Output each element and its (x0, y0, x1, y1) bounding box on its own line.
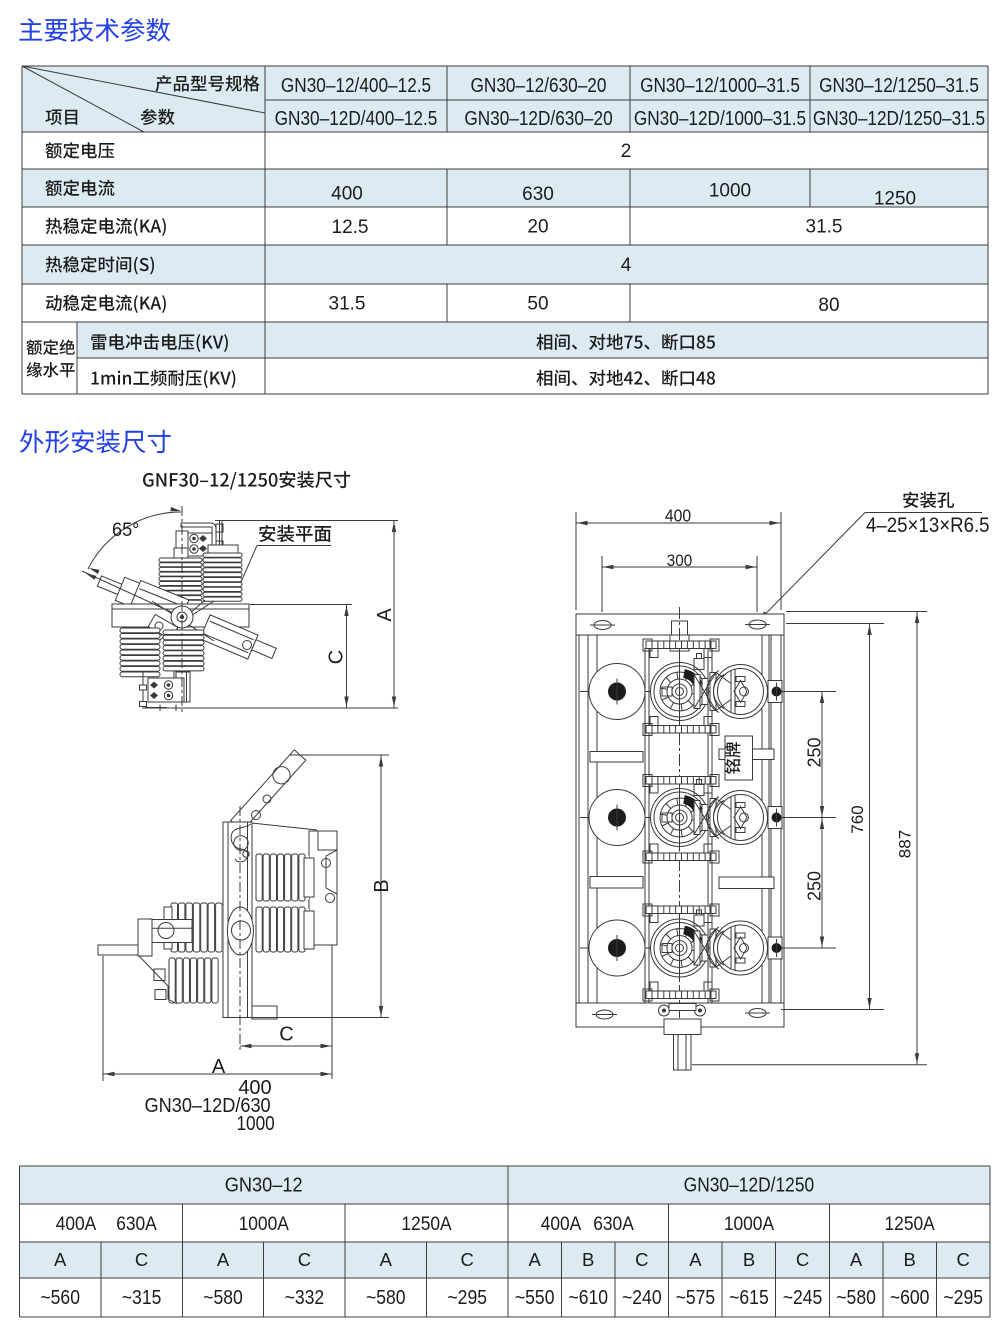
svg-text:C: C (279, 1024, 293, 1046)
svg-text:A: A (212, 1056, 226, 1078)
svg-text:GN30–12/1250–31.5: GN30–12/1250–31.5 (819, 75, 979, 98)
svg-text:~295: ~295 (447, 1286, 487, 1308)
svg-text:250: 250 (805, 737, 825, 767)
svg-text:A: A (850, 1249, 863, 1270)
svg-text:1250A: 1250A (885, 1212, 936, 1234)
svg-text:887: 887 (896, 830, 915, 858)
svg-text:C: C (298, 1249, 311, 1270)
svg-text:31.5: 31.5 (806, 217, 843, 238)
svg-text:50: 50 (527, 294, 548, 315)
svg-text:~580: ~580 (366, 1286, 406, 1308)
svg-text:250: 250 (805, 871, 825, 901)
svg-text:GN30–12D/400–12.5: GN30–12D/400–12.5 (275, 108, 438, 131)
svg-text:C: C (957, 1249, 970, 1270)
svg-text:A: A (380, 1249, 393, 1270)
svg-text:~580: ~580 (836, 1286, 876, 1308)
svg-text:630A: 630A (593, 1212, 634, 1234)
svg-text:GN30–12/630–20: GN30–12/630–20 (471, 75, 607, 98)
svg-text:C: C (461, 1249, 474, 1270)
svg-text:GN30–12D/1250–31.5: GN30–12D/1250–31.5 (813, 108, 985, 131)
svg-text:~560: ~560 (40, 1286, 80, 1308)
svg-text:4–25×13×R6.5: 4–25×13×R6.5 (866, 514, 990, 537)
svg-text:630: 630 (522, 184, 554, 205)
svg-text:80: 80 (818, 295, 839, 316)
svg-text:1000A: 1000A (724, 1212, 775, 1234)
svg-text:4: 4 (621, 255, 632, 276)
svg-text:12.5: 12.5 (332, 217, 369, 238)
svg-text:C: C (635, 1249, 648, 1270)
svg-text:400: 400 (665, 506, 691, 526)
svg-text:630A: 630A (116, 1212, 157, 1234)
svg-text:GN30–12D/1000–31.5: GN30–12D/1000–31.5 (634, 108, 806, 131)
svg-text:~575: ~575 (676, 1286, 716, 1308)
svg-text:B: B (743, 1249, 755, 1270)
svg-text:65°: 65° (112, 518, 139, 540)
svg-text:1000: 1000 (237, 1112, 275, 1135)
svg-text:B: B (582, 1249, 594, 1270)
svg-text:C: C (135, 1249, 148, 1270)
svg-text:GN30–12D/1250: GN30–12D/1250 (684, 1173, 815, 1195)
svg-text:~600: ~600 (890, 1286, 930, 1308)
svg-text:A: A (529, 1249, 542, 1270)
svg-text:31.5: 31.5 (329, 294, 366, 315)
svg-text:A: A (689, 1249, 702, 1270)
svg-text:1250A: 1250A (401, 1212, 452, 1234)
svg-text:~295: ~295 (943, 1286, 983, 1308)
svg-text:GN30–12/400–12.5: GN30–12/400–12.5 (281, 75, 431, 98)
svg-text:A: A (54, 1249, 67, 1270)
svg-text:400A: 400A (56, 1212, 97, 1234)
svg-text:400A: 400A (541, 1212, 582, 1234)
svg-text:~610: ~610 (568, 1286, 608, 1308)
svg-text:1000A: 1000A (239, 1212, 290, 1234)
svg-text:A: A (374, 608, 396, 622)
svg-text:A: A (217, 1249, 230, 1270)
svg-text:~245: ~245 (783, 1286, 823, 1308)
svg-text:B: B (904, 1249, 916, 1270)
svg-text:C: C (326, 650, 348, 664)
svg-text:C: C (796, 1249, 809, 1270)
svg-text:~332: ~332 (285, 1286, 325, 1308)
svg-text:2: 2 (621, 141, 632, 162)
svg-text:20: 20 (527, 217, 548, 238)
svg-text:GN30–12/1000–31.5: GN30–12/1000–31.5 (640, 75, 800, 98)
svg-text:1250: 1250 (874, 189, 916, 210)
svg-text:GN30–12: GN30–12 (225, 1175, 303, 1197)
svg-text:760: 760 (848, 805, 867, 833)
svg-text:~580: ~580 (203, 1286, 243, 1308)
svg-text:~315: ~315 (122, 1286, 162, 1308)
svg-text:400: 400 (331, 184, 363, 205)
svg-text:~615: ~615 (729, 1286, 769, 1308)
svg-text:B: B (371, 879, 393, 892)
svg-text:1000: 1000 (709, 181, 751, 202)
svg-text:~240: ~240 (622, 1286, 662, 1308)
svg-text:300: 300 (667, 551, 693, 570)
svg-text:GN30–12D/630–20: GN30–12D/630–20 (464, 108, 612, 131)
svg-text:~550: ~550 (515, 1286, 555, 1308)
